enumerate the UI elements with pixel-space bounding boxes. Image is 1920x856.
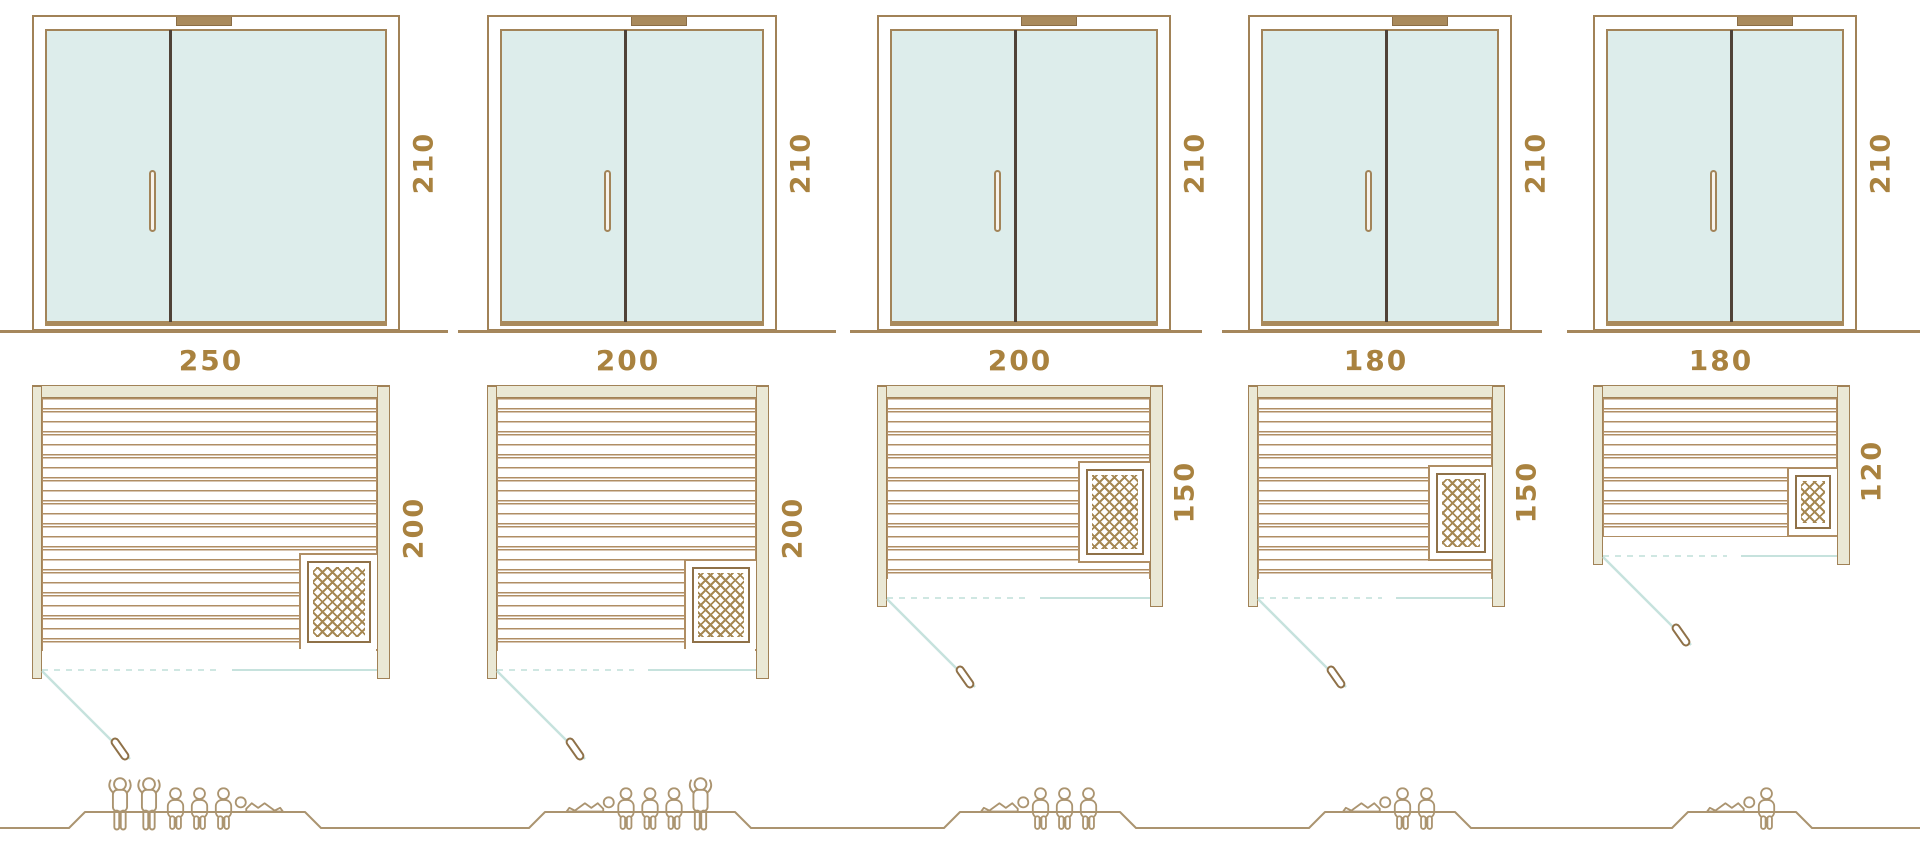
height-dimension-label: 210 <box>786 132 817 194</box>
door-leaf-handle-icon <box>110 737 129 761</box>
right-wall <box>1150 386 1163 607</box>
door-leaf-handle-icon <box>1671 623 1691 647</box>
ground-line <box>460 798 845 838</box>
heater-grid-icon <box>1442 479 1480 547</box>
sauna-size-diagram: 210 250 200 <box>0 0 1920 856</box>
glass-front <box>1606 29 1844 326</box>
plan-view <box>32 385 390 671</box>
door-swing <box>877 597 1163 707</box>
ground-line <box>1225 798 1565 838</box>
depth-dimension-label: 150 <box>1170 461 1201 523</box>
roof-vent <box>1737 17 1793 26</box>
heater-area <box>1787 467 1837 537</box>
right-wall <box>377 386 390 679</box>
floor-line <box>0 330 448 333</box>
floor-line <box>1222 330 1542 333</box>
door-elevation <box>1248 15 1512 331</box>
door-elevation <box>32 15 400 331</box>
floor-line <box>850 330 1202 333</box>
right-wall <box>1492 386 1505 607</box>
back-wall <box>1593 385 1850 398</box>
door-sill <box>1606 321 1844 326</box>
heater-area <box>1078 461 1150 563</box>
glass-front <box>500 29 764 326</box>
depth-dimension-label: 200 <box>399 497 430 559</box>
door-handle <box>1710 170 1717 232</box>
left-wall <box>1593 386 1603 565</box>
width-dimension-label: 180 <box>1689 344 1753 377</box>
back-wall <box>1248 385 1505 398</box>
roof-vent <box>1392 17 1448 26</box>
height-dimension-label: 210 <box>1180 132 1211 194</box>
door-divider <box>624 30 627 322</box>
glass-front <box>45 29 387 326</box>
door-leaf-handle-icon <box>955 665 974 689</box>
door-sill <box>1261 321 1499 326</box>
door-sill <box>500 321 764 326</box>
door-handle <box>994 170 1001 232</box>
heater-area <box>299 553 377 649</box>
ground-line <box>0 798 460 838</box>
door-leaf-handle-icon <box>565 737 584 761</box>
door-divider <box>1730 30 1733 322</box>
roof-vent <box>1021 17 1077 26</box>
door-leaf-handle-icon <box>1326 665 1346 689</box>
heater-grid-icon <box>698 573 744 637</box>
door-handle <box>1365 170 1372 232</box>
door-swing <box>32 669 390 779</box>
heater <box>692 567 750 643</box>
door-handle <box>604 170 611 232</box>
plan-view <box>1593 385 1850 557</box>
plan-view <box>487 385 769 671</box>
back-wall <box>877 385 1163 398</box>
glass-front <box>1261 29 1499 326</box>
left-wall <box>1248 386 1258 607</box>
door-elevation <box>877 15 1171 331</box>
door-sill <box>890 321 1158 326</box>
door-handle <box>149 170 156 232</box>
floor-line <box>458 330 836 333</box>
right-wall <box>756 386 769 679</box>
heater <box>1086 469 1144 555</box>
roof-vent <box>631 17 687 26</box>
back-wall <box>487 385 769 398</box>
plan-view <box>1248 385 1505 599</box>
depth-dimension-label: 150 <box>1512 461 1543 523</box>
heater-area <box>684 559 756 649</box>
door-elevation <box>1593 15 1857 331</box>
left-wall <box>487 386 497 679</box>
heater-grid-icon <box>1092 475 1138 549</box>
height-dimension-label: 210 <box>1866 132 1897 194</box>
door-divider <box>1014 30 1017 322</box>
left-wall <box>877 386 887 607</box>
width-dimension-label: 250 <box>179 344 243 377</box>
glass-front <box>890 29 1158 326</box>
roof-vent <box>176 17 232 26</box>
width-dimension-label: 200 <box>596 344 660 377</box>
height-dimension-label: 210 <box>1521 132 1552 194</box>
door-divider <box>169 30 172 322</box>
back-wall <box>32 385 390 398</box>
width-dimension-label: 180 <box>1344 344 1408 377</box>
door-divider <box>1385 30 1388 322</box>
depth-dimension-label: 200 <box>778 497 809 559</box>
heater <box>307 561 371 643</box>
right-wall <box>1837 386 1850 565</box>
left-wall <box>32 386 42 679</box>
height-dimension-label: 210 <box>409 132 440 194</box>
ground-line <box>845 798 1225 838</box>
door-swing <box>1248 597 1505 707</box>
heater-grid-icon <box>1801 481 1825 523</box>
door-swing <box>487 669 769 779</box>
heater <box>1436 473 1486 553</box>
door-elevation <box>487 15 777 331</box>
heater <box>1795 475 1831 529</box>
door-swing <box>1593 555 1850 665</box>
depth-dimension-label: 120 <box>1857 440 1888 502</box>
plan-view <box>877 385 1163 599</box>
width-dimension-label: 200 <box>988 344 1052 377</box>
heater-area <box>1428 465 1492 561</box>
ground-line <box>1565 798 1920 838</box>
heater-grid-icon <box>313 567 365 637</box>
door-sill <box>45 321 387 326</box>
floor-line <box>1567 330 1920 333</box>
